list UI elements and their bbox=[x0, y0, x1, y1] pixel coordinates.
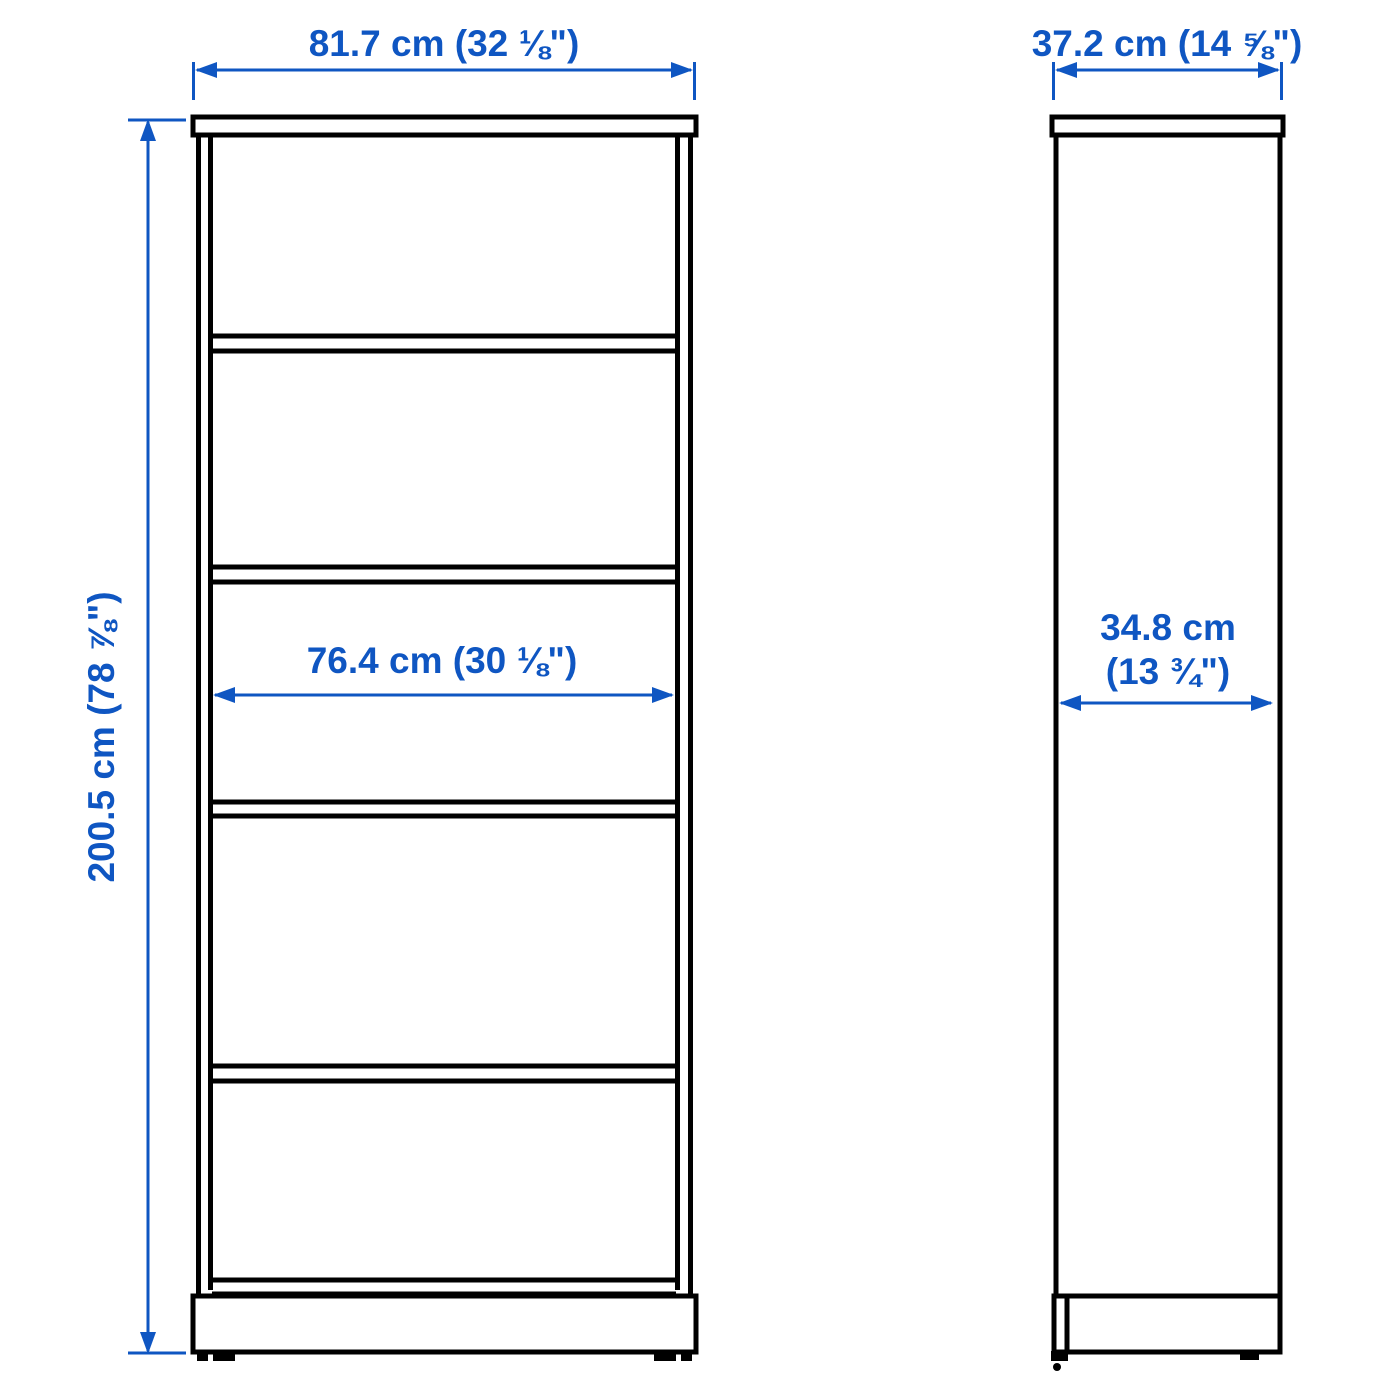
side-depth-dimension-label: 37.2 cm (14 ⅝") bbox=[1032, 23, 1303, 64]
front-width-dimension: 81.7 cm (32 ⅛") bbox=[194, 23, 695, 100]
foot bbox=[1240, 1352, 1259, 1360]
arrow-right-icon bbox=[652, 687, 674, 703]
top-panel bbox=[193, 117, 696, 135]
arrow-right-icon bbox=[671, 62, 693, 78]
shelf bbox=[212, 336, 676, 351]
top-panel bbox=[1052, 117, 1283, 135]
front-view: 81.7 cm (32 ⅛") 200.5 cm (78 ⅞") bbox=[81, 23, 696, 1361]
plinth bbox=[193, 1296, 696, 1352]
side-view: 37.2 cm (14 ⅝") 34.8 c bbox=[1032, 23, 1303, 1371]
plinth bbox=[1067, 1296, 1280, 1352]
arrow-up-icon bbox=[140, 119, 156, 141]
arrow-left-icon bbox=[1055, 62, 1077, 78]
side-cabinet-drawing bbox=[1051, 117, 1283, 1371]
shelf bbox=[212, 802, 676, 816]
arrow-down-icon bbox=[140, 1332, 156, 1354]
bottom-shelf bbox=[212, 1280, 676, 1294]
front-height-dimension: 200.5 cm (78 ⅞") bbox=[81, 119, 186, 1354]
side-inner-depth-dimension-label-line2: (13 ¾") bbox=[1106, 651, 1230, 692]
front-inner-width-dimension: 76.4 cm (30 ⅛") bbox=[213, 640, 674, 703]
front-width-dimension-label: 81.7 cm (32 ⅛") bbox=[309, 23, 580, 64]
foot bbox=[213, 1351, 235, 1361]
product-dimension-diagram: 81.7 cm (32 ⅛") 200.5 cm (78 ⅞") bbox=[0, 0, 1400, 1400]
side-panel-body bbox=[1056, 135, 1280, 1296]
front-cabinet-drawing bbox=[193, 117, 696, 1361]
foot bbox=[1051, 1351, 1068, 1361]
foot bbox=[654, 1351, 676, 1361]
arrow-right-icon bbox=[1258, 62, 1280, 78]
front-inner-width-dimension-label: 76.4 cm (30 ⅛") bbox=[307, 640, 578, 681]
shelf bbox=[212, 567, 676, 582]
side-inner-depth-dimension-label-line1: 34.8 cm bbox=[1100, 607, 1236, 648]
foot bbox=[681, 1351, 692, 1361]
side-depth-dimension: 37.2 cm (14 ⅝") bbox=[1032, 23, 1303, 100]
arrow-left-icon bbox=[213, 687, 235, 703]
arrow-left-icon bbox=[195, 62, 217, 78]
foot-glide bbox=[1053, 1363, 1061, 1371]
foot bbox=[197, 1351, 208, 1361]
front-height-dimension-label: 200.5 cm (78 ⅞") bbox=[81, 591, 122, 882]
shelf bbox=[212, 1066, 676, 1081]
